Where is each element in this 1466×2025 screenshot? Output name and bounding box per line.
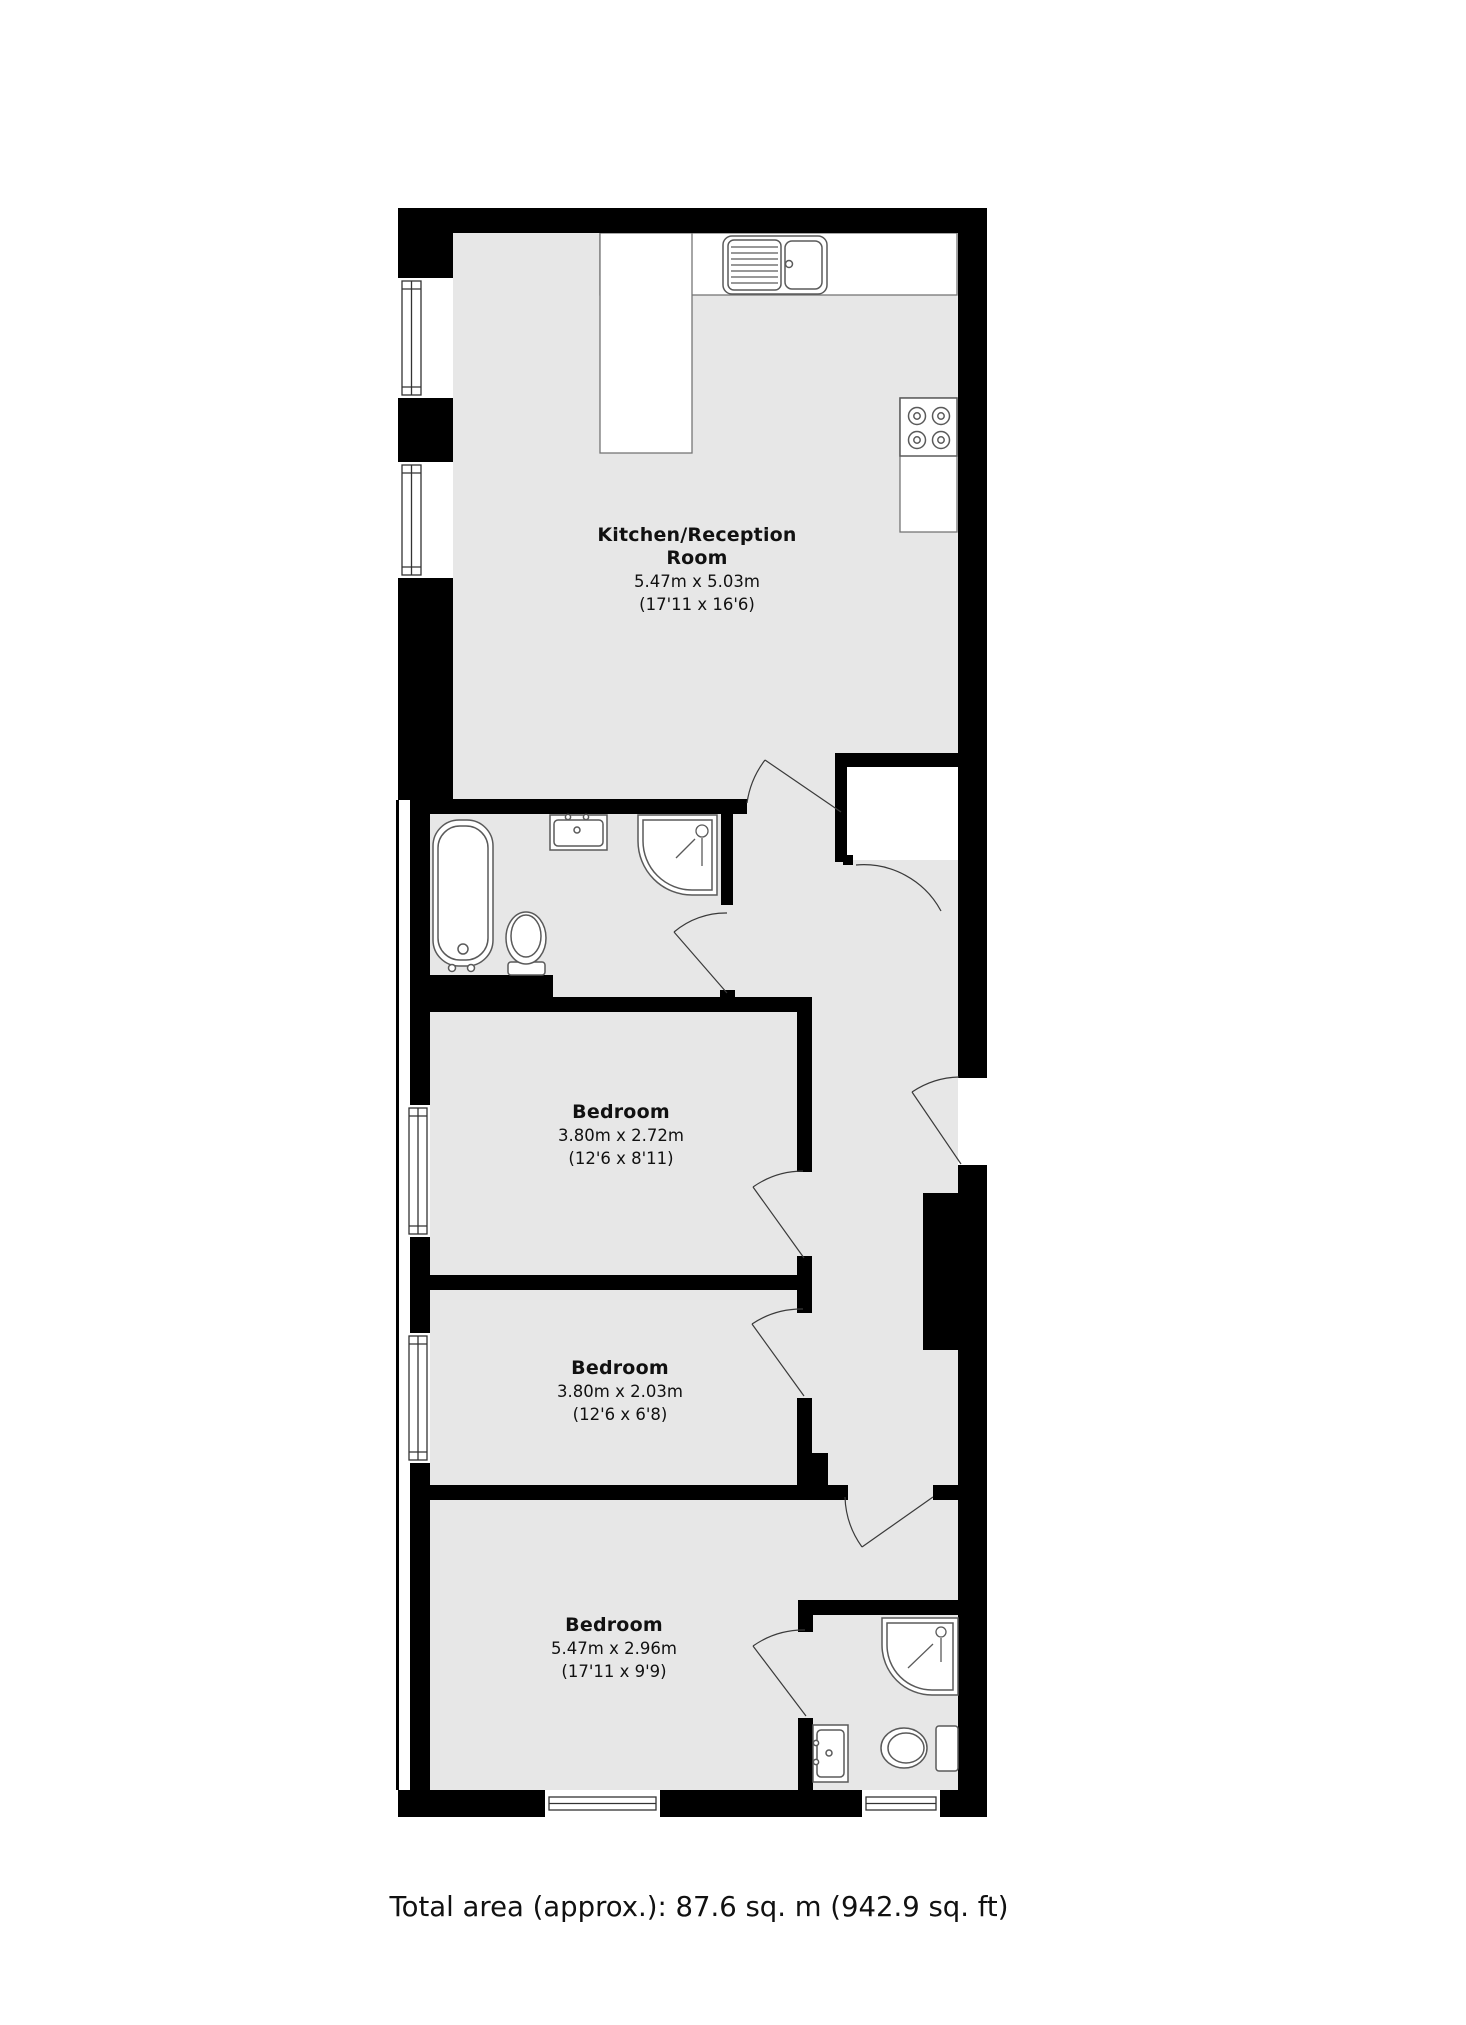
wall-bedroom1-right-stub — [797, 1256, 812, 1275]
room-dimensions-metric: 3.80m x 2.03m — [510, 1380, 730, 1403]
wall-bedroom2-right-block — [797, 1453, 828, 1490]
wall-ensuite-top — [813, 1600, 958, 1615]
wall-closet-stub — [843, 855, 853, 865]
room-dimensions-imperial: (17'11 x 9'9) — [504, 1660, 724, 1683]
label-bedroom-2: Bedroom 3.80m x 2.03m (12'6 x 6'8) — [510, 1357, 730, 1426]
floorplan-drawing — [0, 0, 1466, 2025]
room-name: Bedroom — [504, 1614, 724, 1637]
wall-ensuite-left-upper — [798, 1600, 813, 1632]
floorplan-page: Kitchen/Reception Room 5.47m x 5.03m (17… — [0, 0, 1466, 2025]
window-bedroom2 — [399, 1333, 430, 1463]
wall-closet-left — [835, 753, 847, 862]
wall-bedroom1-right — [797, 1012, 812, 1172]
window-ensuite-bottom — [862, 1790, 940, 1817]
counter-peninsula — [600, 233, 692, 453]
kitchen-sink-icon — [723, 236, 827, 294]
wall-bathroom-door-stub — [720, 990, 735, 998]
wall-left-lower — [410, 800, 430, 1790]
closet-interior — [847, 767, 958, 860]
wall-left-lower-skin — [396, 800, 399, 1790]
total-area-text: Total area (approx.): 87.6 sq. m (942.9 … — [299, 1891, 1099, 1923]
wall-closet-top — [835, 753, 958, 767]
room-dimensions-imperial: (17'11 x 16'6) — [587, 593, 807, 616]
wall-bedroom2-right-lower — [797, 1398, 812, 1453]
wall-bedroom2-bottom — [430, 1485, 848, 1500]
wall-ensuite-left-lower — [798, 1718, 813, 1790]
label-kitchen-reception: Kitchen/Reception Room 5.47m x 5.03m (17… — [587, 524, 807, 616]
window-kitchen-1 — [398, 278, 453, 398]
hob-icon — [900, 398, 957, 456]
wall-right-lower — [958, 1165, 987, 1790]
ensuite-vanity-icon — [813, 1725, 848, 1782]
room-dimensions-metric: 3.80m x 2.72m — [511, 1124, 731, 1147]
wall-bathroom-bottom — [430, 975, 553, 1012]
window-bedroom3-bottom — [545, 1790, 660, 1817]
wall-column — [923, 1193, 958, 1350]
bathroom-toilet-icon — [506, 912, 546, 975]
wall-kitchen-bottom — [430, 799, 747, 814]
room-dimensions-metric: 5.47m x 5.03m — [587, 570, 807, 593]
room-dimensions-metric: 5.47m x 2.96m — [504, 1637, 724, 1660]
room-name: Kitchen/Reception Room — [587, 524, 807, 570]
label-bedroom-3: Bedroom 5.47m x 2.96m (17'11 x 9'9) — [504, 1614, 724, 1683]
wall-bedroom1-bottom — [430, 1275, 812, 1290]
window-kitchen-2 — [398, 462, 453, 578]
label-bedroom-1: Bedroom 3.80m x 2.72m (12'6 x 8'11) — [511, 1101, 731, 1170]
wall-right-upper — [958, 208, 987, 1078]
wall-bedroom3-top-right — [933, 1485, 958, 1500]
bathroom-basin-icon — [550, 814, 607, 850]
wall-top — [398, 208, 987, 233]
room-name: Bedroom — [511, 1101, 731, 1124]
room-name: Bedroom — [510, 1357, 730, 1380]
window-bedroom1 — [399, 1105, 430, 1237]
room-dimensions-imperial: (12'6 x 6'8) — [510, 1403, 730, 1426]
wall-bedroom1-top — [553, 997, 812, 1012]
room-dimensions-imperial: (12'6 x 8'11) — [511, 1147, 731, 1170]
wall-bathroom-right — [721, 813, 733, 905]
bathtub-icon — [433, 820, 493, 972]
